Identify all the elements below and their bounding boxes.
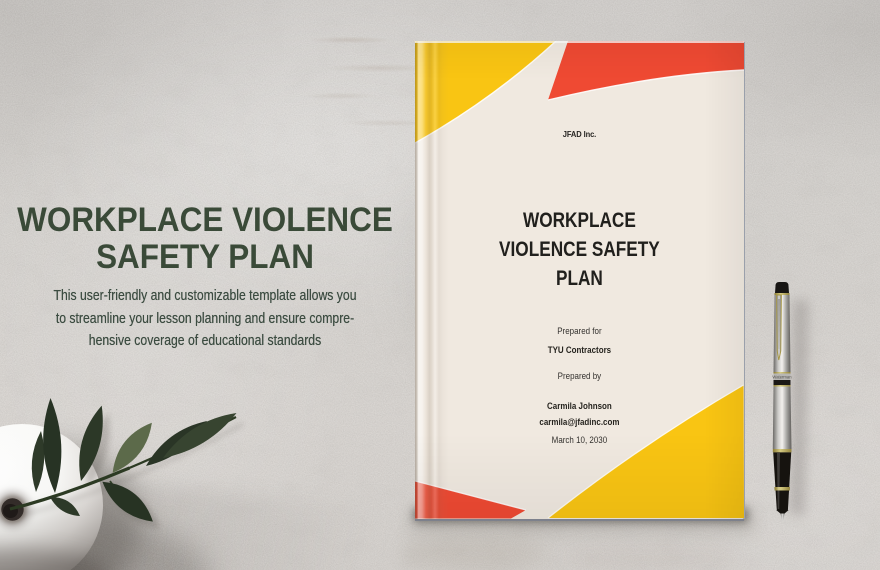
svg-text:Waterman: Waterman — [772, 375, 792, 380]
